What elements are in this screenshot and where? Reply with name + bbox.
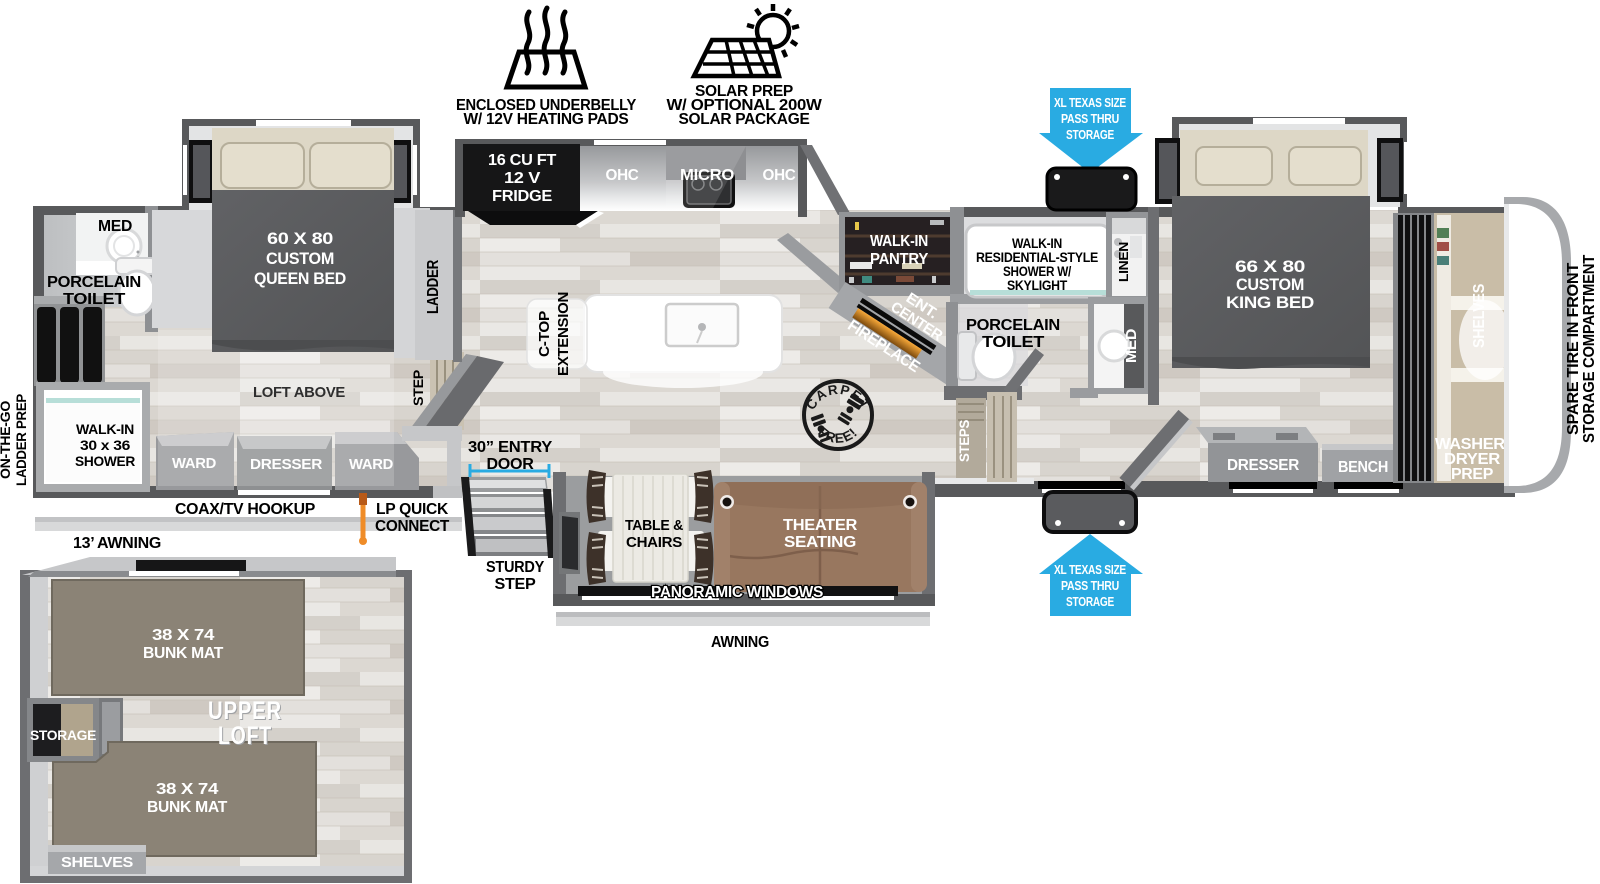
svg-text:UPPER: UPPER: [208, 697, 282, 725]
svg-text:LADDER PREP: LADDER PREP: [13, 394, 29, 486]
svg-text:16 CU FT: 16 CU FT: [488, 152, 557, 169]
svg-text:LP QUICK: LP QUICK: [376, 501, 449, 518]
svg-text:PANTRY: PANTRY: [870, 251, 929, 268]
svg-text:OHC: OHC: [606, 167, 639, 184]
svg-text:DRESSER: DRESSER: [1227, 457, 1299, 474]
svg-text:FRIDGE: FRIDGE: [492, 188, 552, 205]
svg-text:PASS THRU: PASS THRU: [1061, 112, 1119, 126]
svg-text:CONNECT: CONNECT: [375, 518, 450, 535]
svg-text:38 X 74: 38 X 74: [156, 781, 219, 798]
svg-text:KING BED: KING BED: [1226, 294, 1314, 312]
svg-text:EXTENSION: EXTENSION: [555, 292, 572, 376]
svg-text:LADDER: LADDER: [425, 260, 442, 314]
svg-text:WALK-IN: WALK-IN: [870, 233, 928, 250]
svg-text:XL TEXAS SIZE: XL TEXAS SIZE: [1054, 96, 1126, 110]
svg-text:MED: MED: [98, 218, 132, 235]
svg-text:PORCELAIN: PORCELAIN: [47, 274, 141, 291]
svg-text:W/ 12V HEATING PADS: W/ 12V HEATING PADS: [464, 111, 630, 128]
svg-text:XL TEXAS SIZE: XL TEXAS SIZE: [1054, 563, 1126, 577]
svg-text:PORCELAIN: PORCELAIN: [966, 317, 1060, 334]
svg-text:STEPS: STEPS: [957, 420, 972, 462]
svg-text:PANORAMIC WINDOWS: PANORAMIC WINDOWS: [651, 584, 823, 601]
svg-text:SOLAR PACKAGE: SOLAR PACKAGE: [679, 111, 811, 128]
svg-text:TABLE &: TABLE &: [625, 518, 684, 534]
svg-text:STEP: STEP: [410, 370, 426, 406]
svg-text:WALK-IN: WALK-IN: [1012, 236, 1062, 251]
svg-text:TOILET: TOILET: [63, 291, 126, 308]
svg-text:COAX/TV HOOKUP: COAX/TV HOOKUP: [175, 501, 315, 518]
svg-text:CUSTOM: CUSTOM: [1236, 276, 1304, 294]
svg-text:STORAGE: STORAGE: [1066, 595, 1114, 609]
svg-text:SHELVES: SHELVES: [1471, 284, 1488, 348]
svg-text:PASS THRU: PASS THRU: [1061, 579, 1119, 593]
svg-text:THEATER: THEATER: [783, 517, 857, 534]
svg-text:SHOWER: SHOWER: [75, 453, 135, 469]
svg-text:STURDY: STURDY: [486, 559, 545, 576]
svg-text:CHAIRS: CHAIRS: [626, 535, 683, 551]
svg-text:BUNK MAT: BUNK MAT: [147, 799, 228, 816]
svg-text:SPARE TIRE IN FRONT: SPARE TIRE IN FRONT: [1565, 262, 1582, 435]
svg-text:SHOWER W/: SHOWER W/: [1003, 264, 1071, 279]
svg-text:60 X 80: 60 X 80: [267, 230, 333, 248]
svg-text:BUNK MAT: BUNK MAT: [143, 645, 224, 662]
svg-text:STORAGE: STORAGE: [1066, 128, 1114, 142]
svg-text:BENCH: BENCH: [1338, 459, 1388, 476]
svg-text:RESIDENTIAL-STYLE: RESIDENTIAL-STYLE: [976, 250, 1098, 265]
svg-text:AWNING: AWNING: [711, 634, 769, 651]
svg-text:30 x 36: 30 x 36: [80, 437, 131, 453]
svg-text:OHC: OHC: [763, 167, 796, 184]
svg-text:QUEEN BED: QUEEN BED: [254, 270, 346, 288]
svg-text:SKYLIGHT: SKYLIGHT: [1007, 278, 1068, 293]
svg-text:12 V: 12 V: [504, 170, 541, 187]
svg-text:MED: MED: [1123, 329, 1140, 363]
svg-text:PREP: PREP: [1451, 466, 1493, 483]
svg-text:30” ENTRY: 30” ENTRY: [468, 439, 553, 456]
svg-text:CUSTOM: CUSTOM: [266, 250, 334, 268]
svg-text:SHELVES: SHELVES: [61, 855, 134, 871]
svg-text:ON-THE-GO: ON-THE-GO: [0, 401, 13, 479]
svg-text:38 X 74: 38 X 74: [152, 627, 215, 644]
svg-text:66 X 80: 66 X 80: [1235, 258, 1305, 276]
svg-text:MICRO: MICRO: [680, 167, 734, 184]
svg-text:STEP: STEP: [495, 576, 536, 593]
svg-text:STORAGE: STORAGE: [30, 728, 96, 743]
svg-text:LOFT: LOFT: [218, 722, 272, 750]
svg-text:SEATING: SEATING: [784, 534, 856, 551]
svg-text:LINEN: LINEN: [1116, 242, 1131, 282]
svg-text:STORAGE COMPARTMENT: STORAGE COMPARTMENT: [1581, 254, 1598, 443]
svg-text:13’ AWNING: 13’ AWNING: [73, 535, 161, 552]
svg-text:WALK-IN: WALK-IN: [76, 421, 134, 437]
svg-text:C-TOP: C-TOP: [536, 311, 553, 357]
